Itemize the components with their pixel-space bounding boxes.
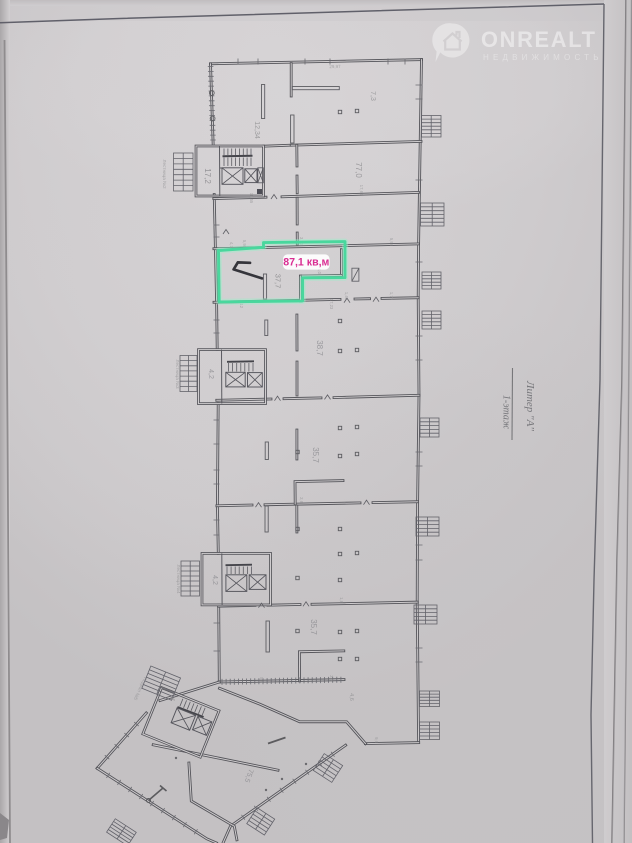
svg-text:ONREALT: ONREALT	[481, 27, 597, 52]
svg-text:29,97: 29,97	[329, 64, 341, 69]
svg-text:17,61: 17,61	[359, 185, 364, 196]
svg-text:16,55: 16,55	[249, 193, 254, 204]
svg-text:2,6: 2,6	[299, 497, 304, 503]
svg-text:7,3: 7,3	[369, 91, 376, 101]
svg-text:17,2: 17,2	[203, 168, 212, 184]
svg-text:35,7: 35,7	[311, 447, 320, 463]
svg-text:1-этаж: 1-этаж	[501, 395, 512, 430]
svg-text:1,8: 1,8	[339, 597, 344, 603]
svg-text:35,7: 35,7	[309, 619, 318, 635]
svg-text:9,6: 9,6	[374, 737, 379, 743]
svg-text:37,7: 37,7	[274, 274, 283, 289]
svg-text:5,8: 5,8	[259, 677, 264, 683]
svg-text:87,1 кв,м: 87,1 кв,м	[283, 257, 329, 269]
svg-text:3,9: 3,9	[329, 675, 334, 681]
svg-text:17,23: 17,23	[329, 299, 334, 310]
svg-text:4,2: 4,2	[207, 369, 214, 379]
svg-text:5,96: 5,96	[389, 238, 394, 247]
svg-text:4,6: 4,6	[348, 693, 354, 701]
svg-text:Лестница №3: Лестница №3	[175, 359, 180, 388]
svg-text:НЕДВИЖИМОСТЬ: НЕДВИЖИМОСТЬ	[483, 53, 603, 62]
svg-text:Литер "А": Литер "А"	[524, 380, 536, 431]
svg-text:12,34: 12,34	[253, 121, 260, 139]
svg-text:Лестница №2: Лестница №2	[162, 159, 167, 188]
svg-text:38,7: 38,7	[315, 340, 324, 356]
svg-text:4,2: 4,2	[211, 575, 218, 585]
svg-text:77,0: 77,0	[354, 162, 363, 178]
svg-text:Лестница №4: Лестница №4	[176, 564, 181, 593]
svg-text:1,40: 1,40	[344, 292, 349, 301]
svg-text:1,77: 1,77	[389, 292, 394, 301]
